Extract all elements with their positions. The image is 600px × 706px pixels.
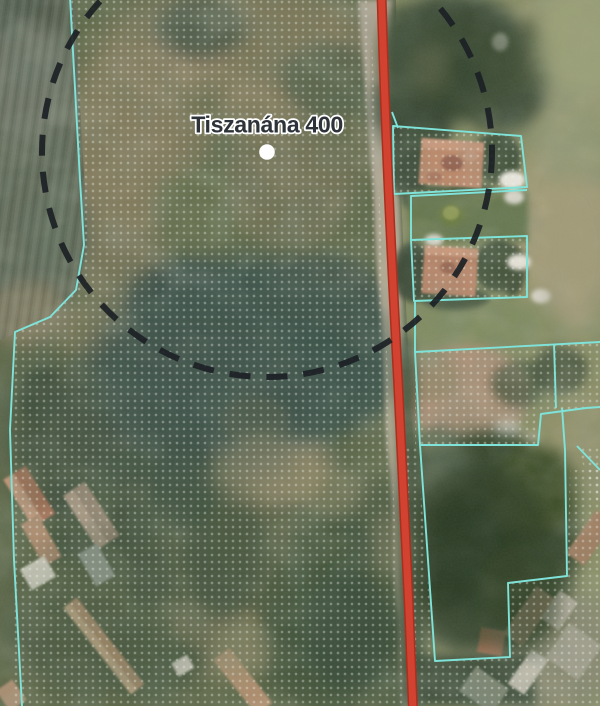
svg-text:Tiszanána 400: Tiszanána 400: [191, 112, 343, 138]
